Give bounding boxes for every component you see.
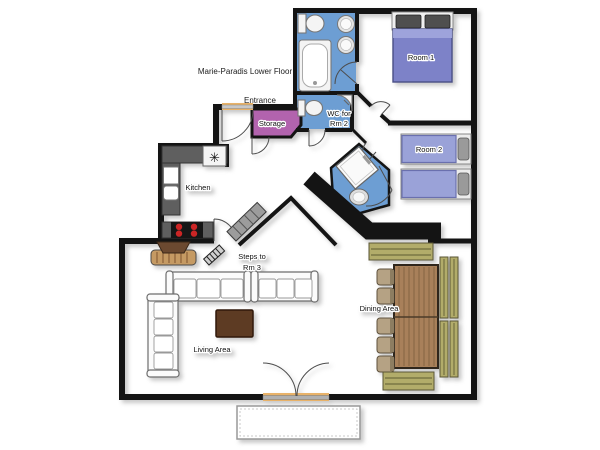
dining-area	[369, 243, 458, 390]
chair-icon	[377, 269, 394, 285]
single-bed	[401, 169, 471, 199]
stove-icon	[171, 222, 203, 238]
sink-icon	[338, 37, 355, 54]
bench	[369, 243, 433, 260]
dining-area-label: Dining Area	[360, 304, 400, 313]
sofa	[251, 271, 318, 302]
pillow	[458, 138, 469, 160]
room-2	[401, 134, 471, 199]
vent-icon: ✳	[209, 150, 220, 165]
pillow	[425, 15, 450, 28]
chair-icon	[377, 356, 394, 372]
chair-icon	[377, 337, 394, 353]
chair-icon	[377, 288, 394, 304]
storage-label: Storage	[259, 119, 285, 128]
french-doors	[263, 363, 329, 401]
room2-label: Room 2	[416, 145, 442, 154]
room1-door-arc	[371, 102, 390, 115]
toilet-icon	[298, 14, 324, 33]
stairs	[227, 202, 266, 241]
fridge-icon	[164, 167, 179, 200]
kitchen-label: Kitchen	[185, 183, 210, 192]
room1-label: Room 1	[408, 53, 434, 62]
coffee-table	[216, 310, 253, 337]
wc-door-arc	[309, 130, 325, 146]
wc-label-line2: Rm 2	[330, 119, 348, 128]
terrace	[237, 406, 360, 439]
fireplace	[151, 242, 196, 265]
dining-table	[394, 265, 438, 368]
sink-icon	[350, 189, 369, 205]
toilet-icon	[298, 100, 323, 116]
entrance-label: Entrance	[244, 96, 277, 105]
entrance-door	[222, 103, 253, 141]
storage-door-arc	[252, 137, 269, 154]
bench	[383, 372, 434, 390]
kitchen: ✳	[162, 146, 227, 238]
floor-plan: ✳	[122, 11, 474, 439]
sofa	[147, 294, 179, 377]
double-bed	[392, 12, 453, 82]
pillow	[458, 173, 469, 195]
floor-plan-svg: ✳	[0, 0, 600, 450]
bench	[440, 257, 458, 318]
storage-room	[252, 109, 301, 154]
living-area-label: Living Area	[193, 345, 231, 354]
wc-label-line1: WC for	[327, 109, 351, 118]
steps-label-line1: Steps to	[238, 252, 266, 261]
sink-icon	[338, 16, 355, 33]
bench	[440, 321, 458, 377]
floor-plan-page: ✳	[0, 0, 600, 450]
dining-chairs	[377, 269, 394, 372]
plan-title: Marie-Paradis Lower Floor	[198, 67, 293, 76]
steps-icon	[204, 245, 225, 265]
room-1	[392, 12, 453, 82]
chair-icon	[377, 318, 394, 334]
bathtub-icon	[299, 40, 331, 91]
living-area	[147, 271, 318, 377]
pillow	[396, 15, 421, 28]
steps-label-line2: Rm 3	[243, 263, 261, 272]
